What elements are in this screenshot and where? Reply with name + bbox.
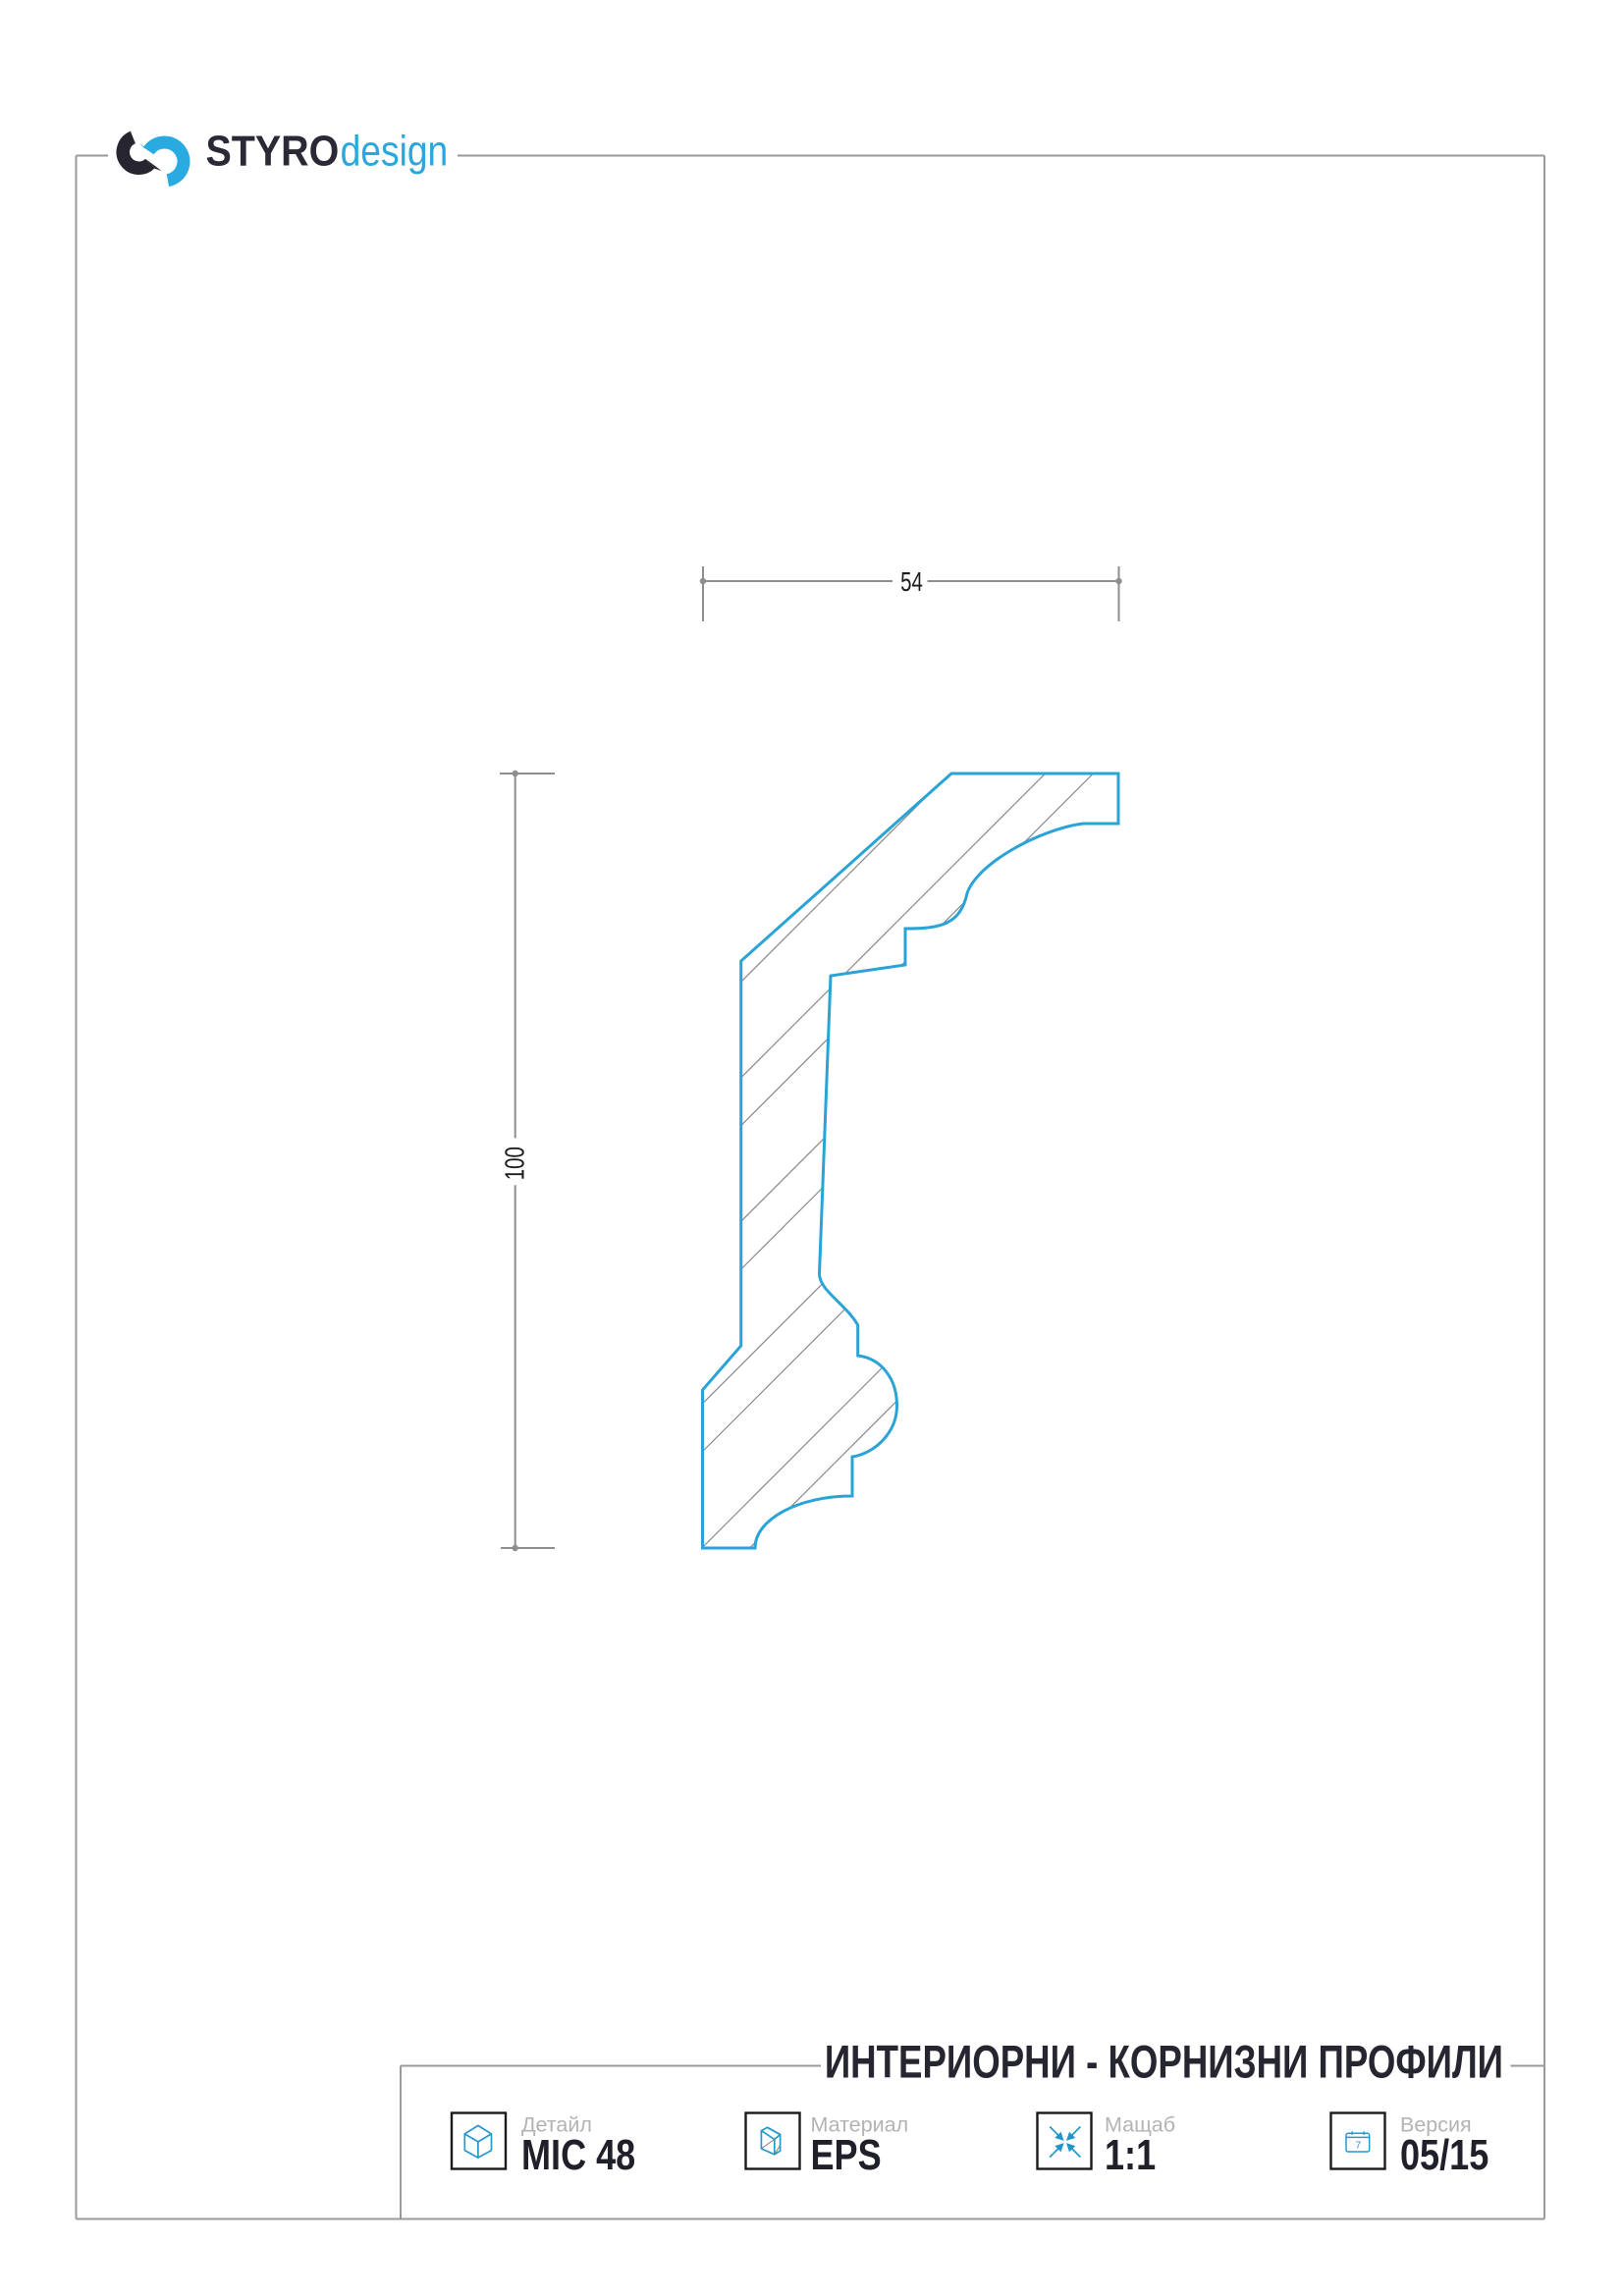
svg-text:MIC 48: MIC 48 bbox=[521, 2131, 635, 2179]
svg-text:100: 100 bbox=[501, 1147, 531, 1180]
svg-text:design: design bbox=[341, 127, 449, 176]
svg-text:STYRO: STYRO bbox=[206, 127, 340, 175]
svg-text:ИНТЕРИОРНИ - КОРНИЗНИ ПРОФИЛИ: ИНТЕРИОРНИ - КОРНИЗНИ ПРОФИЛИ bbox=[825, 2036, 1503, 2087]
svg-text:1:1: 1:1 bbox=[1105, 2131, 1156, 2179]
svg-text:7: 7 bbox=[1355, 2140, 1361, 2152]
svg-text:54: 54 bbox=[900, 567, 923, 598]
svg-text:05/15: 05/15 bbox=[1400, 2131, 1488, 2179]
svg-text:EPS: EPS bbox=[811, 2131, 882, 2179]
